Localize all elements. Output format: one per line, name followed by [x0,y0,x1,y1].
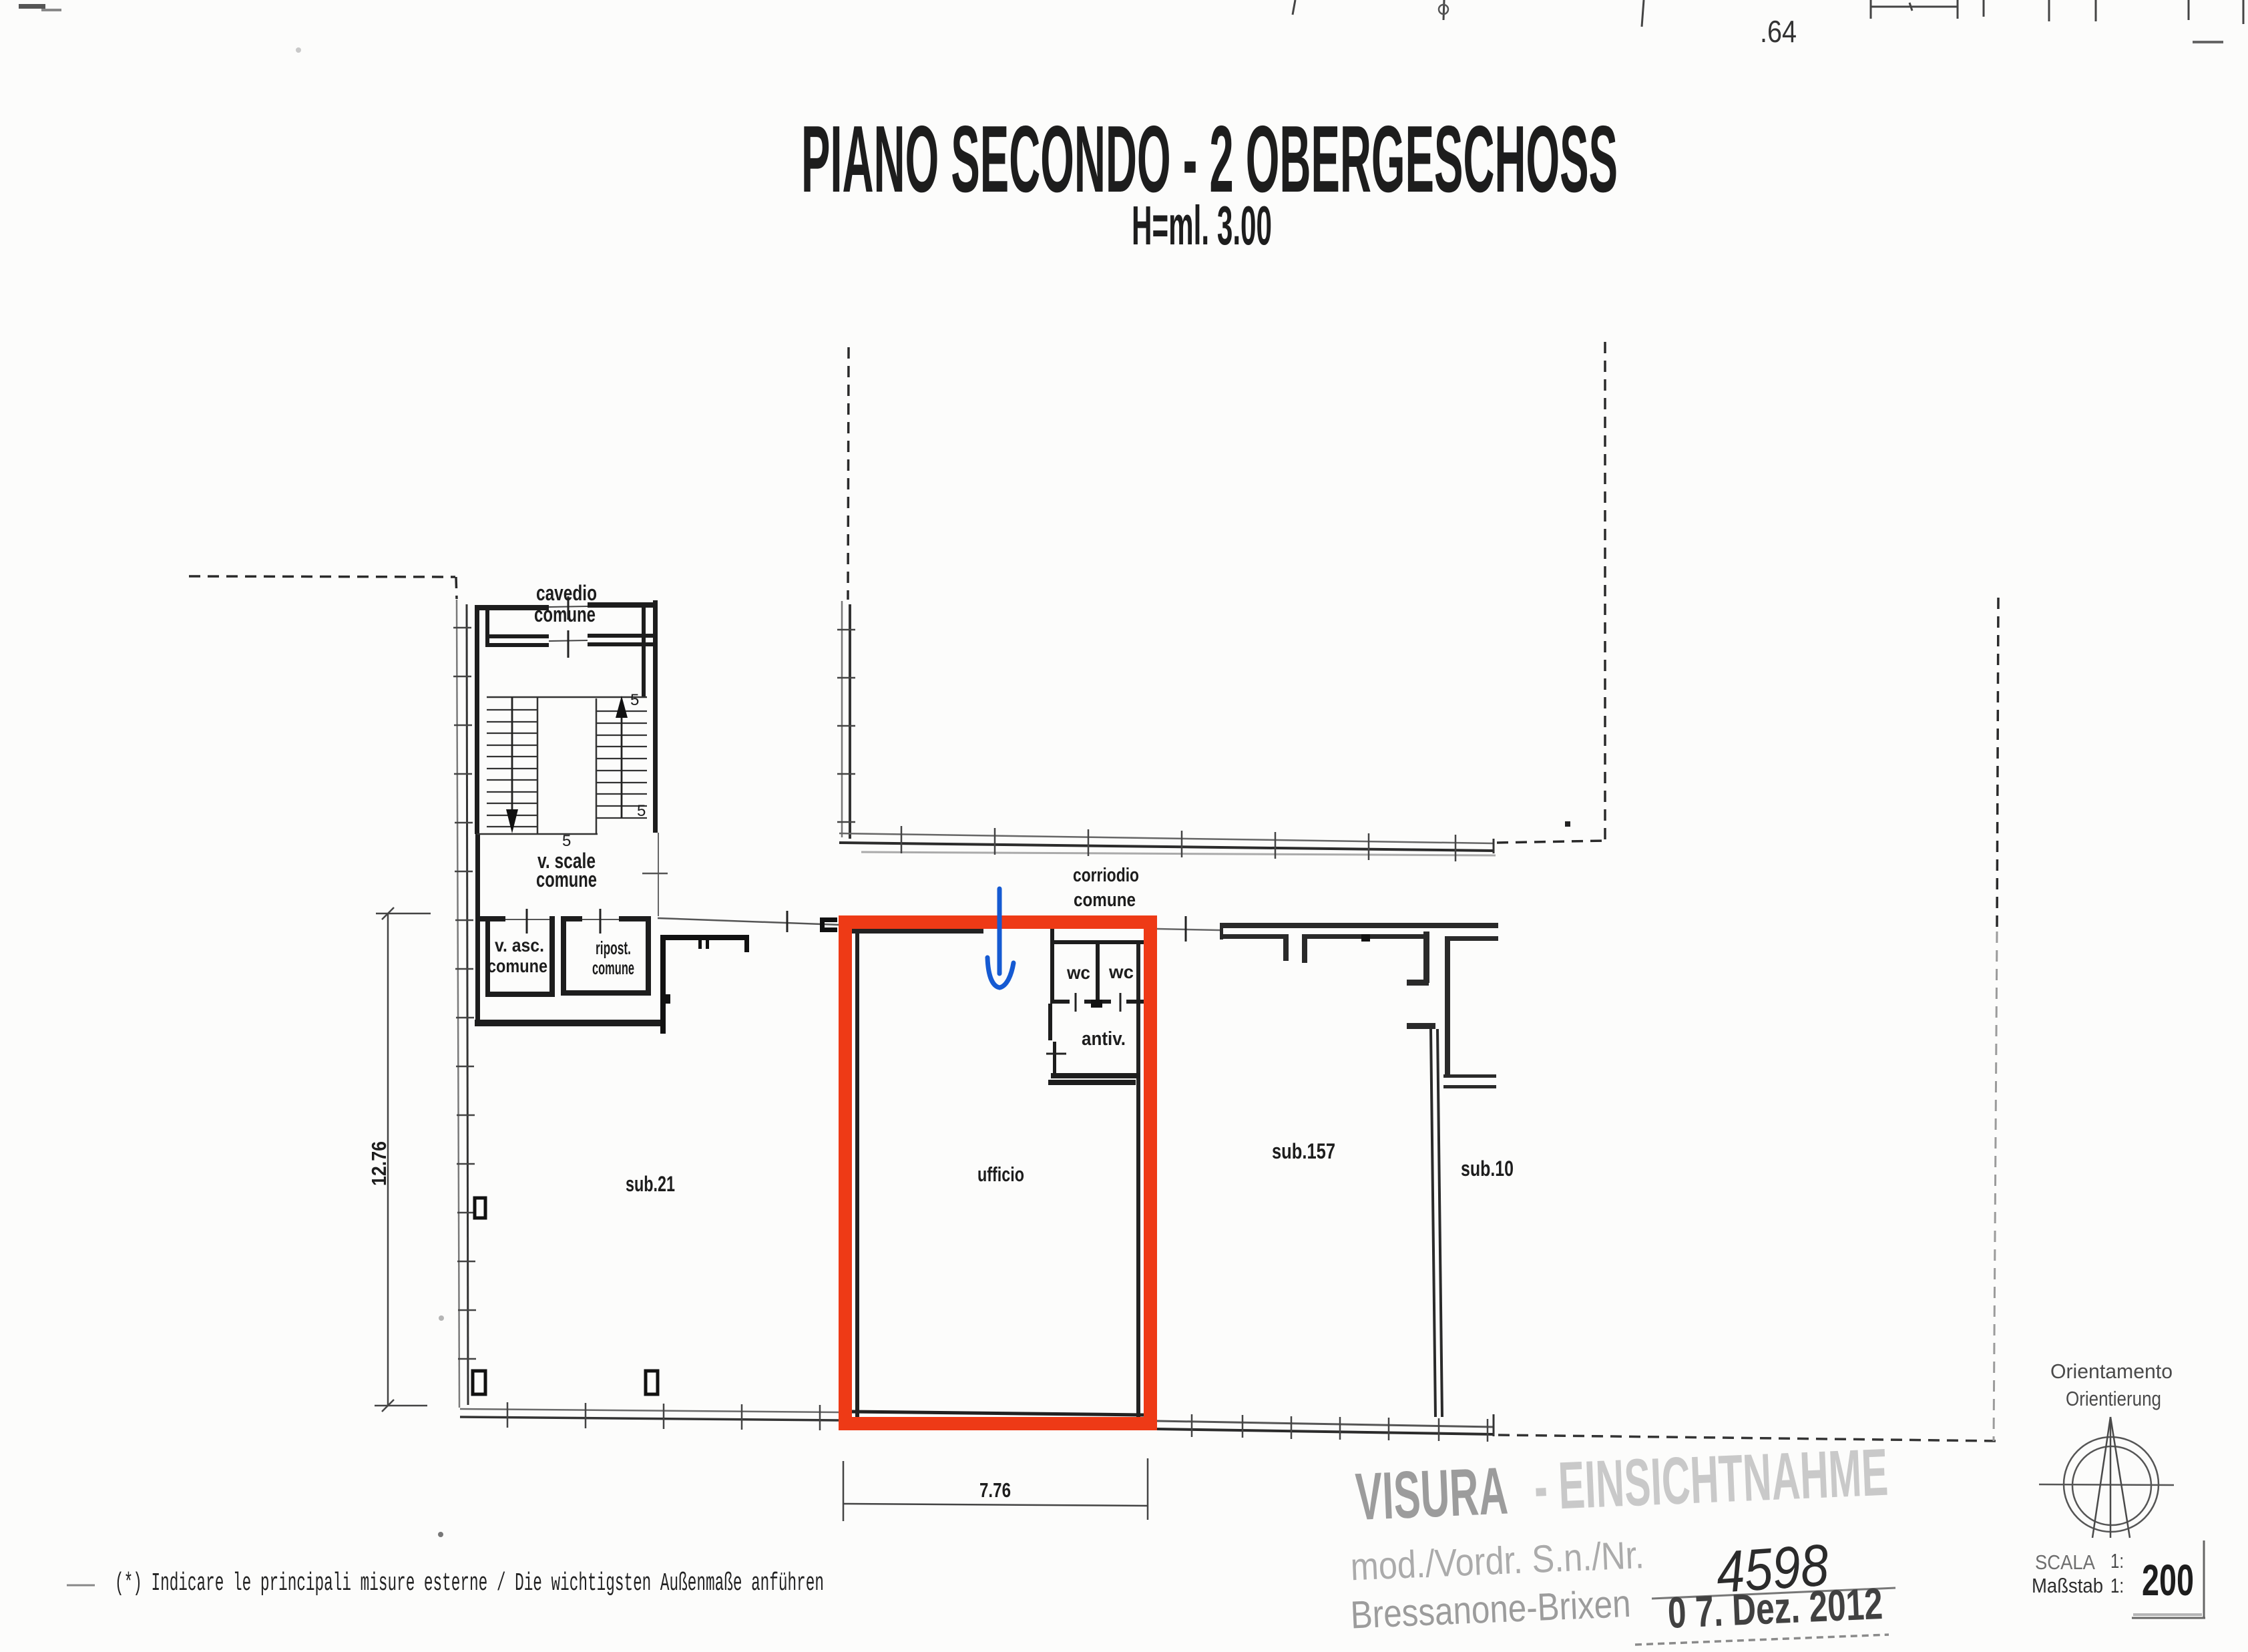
svg-text:SCALA: SCALA [2035,1551,2095,1574]
svg-text:7.76: 7.76 [979,1478,1011,1502]
svg-text:comune: comune [487,956,547,976]
svg-text:1:: 1: [2110,1574,2124,1597]
svg-text:200: 200 [2142,1555,2194,1605]
svg-text:ufficio: ufficio [977,1163,1024,1186]
svg-text:antiv.: antiv. [1082,1028,1126,1050]
svg-text:5: 5 [637,802,646,820]
svg-text:mod./Vordr. S.n./Nr.: mod./Vordr. S.n./Nr. [1349,1533,1644,1589]
svg-text:comune: comune [534,602,596,626]
svg-text:cavedio: cavedio [536,581,597,605]
svg-text:wc: wc [1108,962,1134,982]
svg-text:corriodio: corriodio [1073,865,1139,886]
svg-text:5: 5 [562,832,571,850]
svg-text:Bressanone-Brixen: Bressanone-Brixen [1349,1582,1631,1637]
svg-text:0 7. Dez. 2012: 0 7. Dez. 2012 [1666,1579,1883,1637]
svg-text:Orientamento: Orientamento [2050,1360,2173,1383]
svg-text:(*) Indicare le principali mis: (*) Indicare le principali misure estern… [115,1569,824,1598]
svg-text:sub.157: sub.157 [1272,1139,1335,1163]
svg-text:- EINSICHTNAHME: - EINSICHTNAHME [1533,1435,1889,1524]
svg-text:1:: 1: [2110,1549,2124,1573]
svg-text:comune: comune [536,867,597,891]
svg-text:12.76: 12.76 [367,1141,391,1186]
svg-text:v. asc.: v. asc. [495,935,544,956]
svg-text:VISURA: VISURA [1354,1454,1509,1534]
svg-text:sub.21: sub.21 [626,1172,675,1196]
svg-text:5: 5 [630,691,639,709]
svg-text:wc: wc [1066,962,1090,983]
svg-text:sub.10: sub.10 [1461,1157,1514,1181]
svg-text:comune: comune [592,958,634,978]
svg-text:H=ml. 3.00: H=ml. 3.00 [1132,194,1272,256]
svg-text:ripost.: ripost. [596,938,631,958]
svg-text:Maßstab: Maßstab [2032,1574,2103,1597]
svg-text:comune: comune [1074,889,1136,911]
svg-text:.64: .64 [1760,14,1797,49]
svg-text:Orientierung: Orientierung [2066,1387,2161,1410]
